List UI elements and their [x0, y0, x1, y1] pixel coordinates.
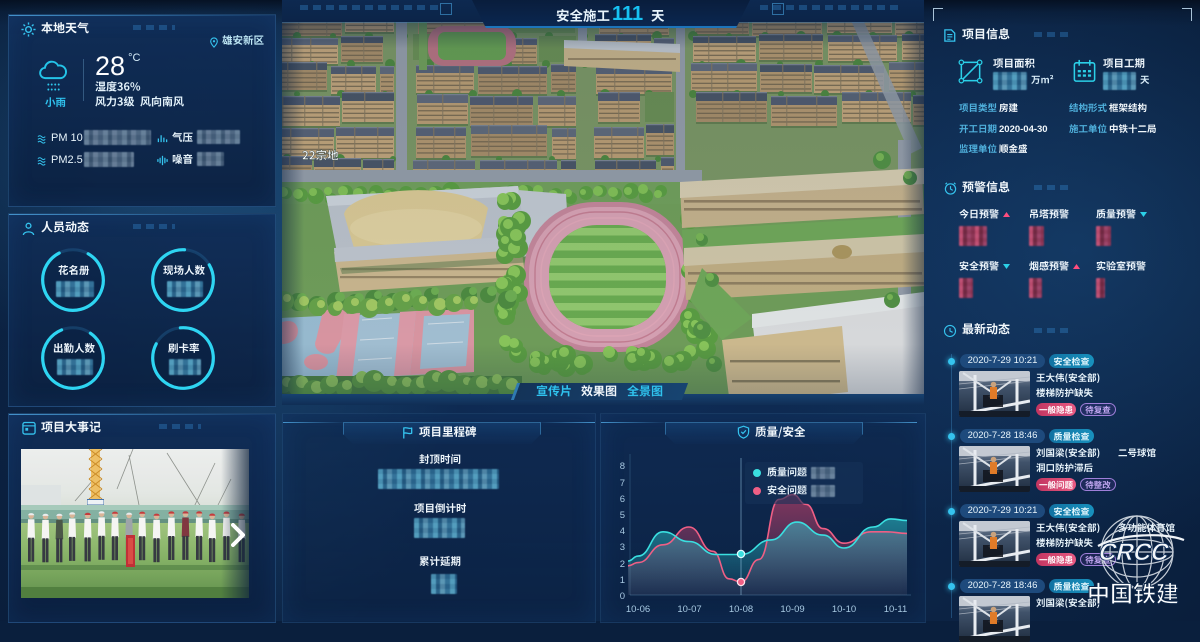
svg-text:6: 6: [620, 494, 625, 505]
svg-text:4: 4: [620, 526, 625, 537]
svg-text:10-08: 10-08: [729, 604, 753, 615]
svg-text:10-07: 10-07: [677, 604, 701, 615]
svg-text:10-06: 10-06: [626, 604, 650, 615]
svg-text:10-10: 10-10: [832, 604, 856, 615]
svg-text:0: 0: [620, 591, 625, 602]
svg-text:1: 1: [620, 575, 625, 586]
svg-text:10-11: 10-11: [884, 604, 908, 615]
svg-text:5: 5: [620, 510, 625, 521]
svg-text:CRCC: CRCC: [1096, 539, 1172, 566]
svg-text:8: 8: [620, 461, 625, 472]
svg-text:2: 2: [620, 559, 625, 570]
svg-text:3: 3: [620, 542, 625, 553]
svg-text:7: 7: [620, 478, 625, 489]
svg-text:10-09: 10-09: [780, 604, 804, 615]
